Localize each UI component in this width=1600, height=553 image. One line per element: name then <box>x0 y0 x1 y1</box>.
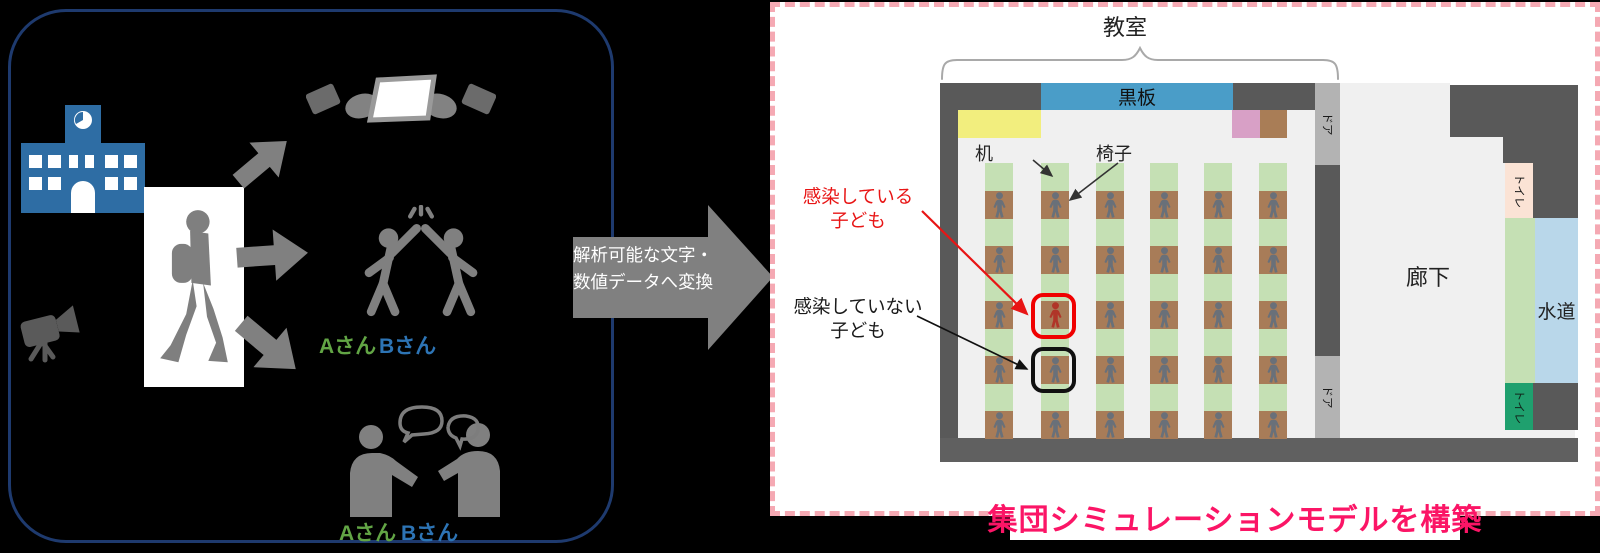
student-seat <box>1259 301 1287 329</box>
healthy-highlight-box <box>1031 347 1076 393</box>
talk-label-a: Aさん <box>339 517 396 547</box>
wall-top-left <box>940 83 1041 110</box>
toilet-bottom: トイレ <box>1505 383 1533 430</box>
student-seat <box>1096 246 1124 274</box>
student-icon <box>1262 247 1285 273</box>
classroom-brace <box>940 46 1340 80</box>
wall-door-middle <box>1315 165 1340 356</box>
door-top: ドア <box>1315 83 1340 165</box>
student-seat <box>1096 191 1124 219</box>
infected-legend: 感染している 子ども <box>793 185 923 233</box>
transform-arrow: 解析可能な文字・ 数値データへ変換 <box>573 205 773 350</box>
student-icon <box>1099 247 1122 273</box>
student-seat <box>1150 411 1178 439</box>
school-icon <box>21 105 145 213</box>
student-icon <box>1262 192 1285 218</box>
student-icon <box>988 247 1011 273</box>
toilet-top: トイレ <box>1505 163 1533 218</box>
blackboard: 黒板 <box>1041 83 1233 110</box>
pink-block <box>1232 110 1260 138</box>
student-seat <box>985 411 1013 439</box>
student-icon <box>1207 302 1230 328</box>
student-icon <box>988 357 1011 383</box>
classroom-title: 教室 <box>1050 10 1200 42</box>
student-icon <box>1207 247 1230 273</box>
wall-corridor-top <box>1450 85 1578 137</box>
student-seat <box>1259 191 1287 219</box>
highfive-label-a: Aさん <box>319 330 376 360</box>
walking-student-frame <box>144 187 244 387</box>
diagram-canvas: Aさん Bさん Aさん Bさん 解析可能な文字・ 数値データへ変換 <box>0 0 1600 553</box>
brown-block <box>1260 110 1287 138</box>
student-seat <box>1259 411 1287 439</box>
student-icon <box>1153 247 1176 273</box>
desk-strip <box>1150 163 1178 439</box>
tablet-exchange-icon <box>306 66 496 141</box>
water-label: 水道 <box>1533 297 1580 324</box>
student-icon <box>1153 357 1176 383</box>
student-seat <box>1204 356 1232 384</box>
student-icon <box>1262 302 1285 328</box>
student-icon <box>1099 412 1122 438</box>
caption-box: 集団シミュレーションモデルを構築 <box>1010 494 1460 540</box>
student-seat <box>985 301 1013 329</box>
student-seat <box>1259 246 1287 274</box>
student-icon <box>1262 412 1285 438</box>
student-seat <box>985 356 1013 384</box>
student-seat <box>985 246 1013 274</box>
desk-strip <box>985 163 1013 439</box>
student-icon <box>988 302 1011 328</box>
student-seat <box>1041 246 1069 274</box>
student-icon <box>988 192 1011 218</box>
student-seat <box>1150 356 1178 384</box>
student-seat <box>1096 411 1124 439</box>
student-seat <box>1041 191 1069 219</box>
healthy-legend: 感染していない 子ども <box>793 295 923 343</box>
desk-strip <box>1259 163 1287 439</box>
high-five-icon <box>356 205 486 320</box>
student-seat <box>1259 356 1287 384</box>
wall-bottom <box>940 438 1578 462</box>
student-seat <box>1150 191 1178 219</box>
student-seat <box>985 191 1013 219</box>
blackboard-label: 黒板 <box>1118 83 1156 110</box>
door-bottom: ドア <box>1315 356 1340 438</box>
corridor-floor-top <box>1340 83 1450 110</box>
transform-arrow-text: 解析可能な文字・ 数値データへ変換 <box>573 242 713 296</box>
student-seat <box>1150 301 1178 329</box>
student-icon <box>1262 357 1285 383</box>
student-icon <box>1099 357 1122 383</box>
corridor-label: 廊下 <box>1388 260 1468 292</box>
wall-top-right <box>1233 83 1315 110</box>
wall-right-2 <box>1533 383 1578 430</box>
student-icon <box>1099 192 1122 218</box>
simulation-model-panel: 教室 黒板 ドア ドア 机 <box>770 2 1600 516</box>
student-icon <box>988 412 1011 438</box>
student-icon <box>1207 192 1230 218</box>
wall-left <box>940 83 958 438</box>
highfive-label-b: Bさん <box>379 330 436 360</box>
video-input-panel: Aさん Bさん Aさん Bさん <box>8 9 614 543</box>
wall-corridor-step <box>1503 137 1578 163</box>
student-seat <box>1204 246 1232 274</box>
student-icon <box>1099 302 1122 328</box>
student-seat <box>1150 246 1178 274</box>
chair-label: 椅子 <box>1096 140 1132 166</box>
conversation-icon <box>338 401 514 517</box>
student-seat <box>1096 356 1124 384</box>
desk-strip <box>1204 163 1232 439</box>
student-icon <box>1044 192 1067 218</box>
student-seat <box>1204 301 1232 329</box>
teacher-desk-block <box>958 110 1041 138</box>
infected-highlight-box <box>1031 293 1076 339</box>
video-camera-icon <box>19 295 85 363</box>
wall-right-1 <box>1533 163 1578 218</box>
student-icon <box>1044 247 1067 273</box>
student-seat <box>1041 411 1069 439</box>
student-icon <box>1153 302 1176 328</box>
student-icon <box>1044 412 1067 438</box>
walking-student-icon <box>155 197 233 387</box>
talk-label-b: Bさん <box>401 517 458 547</box>
student-seat <box>1096 301 1124 329</box>
student-icon <box>1153 412 1176 438</box>
caption-text: 集団シミュレーションモデルを構築 <box>988 495 1483 539</box>
desk-strip <box>1096 163 1124 439</box>
student-seat <box>1204 411 1232 439</box>
student-icon <box>1153 192 1176 218</box>
student-icon <box>1207 357 1230 383</box>
student-icon <box>1207 412 1230 438</box>
desk-label: 机 <box>975 140 993 166</box>
student-seat <box>1204 191 1232 219</box>
water-green-strip <box>1505 218 1535 383</box>
